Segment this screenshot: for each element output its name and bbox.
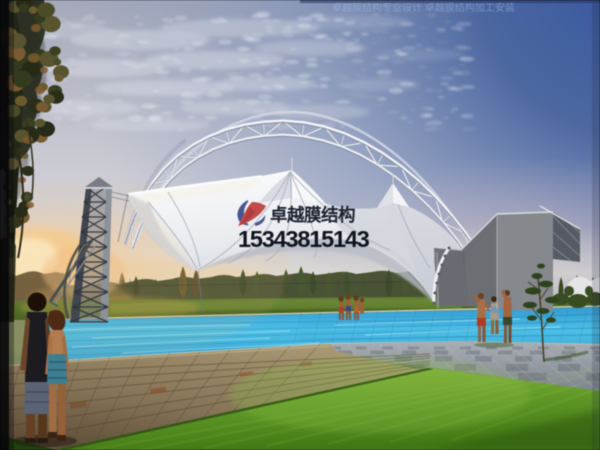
svg-text:15343815143: 15343815143 (238, 226, 370, 252)
svg-text:卓越膜结构: 卓越膜结构 (270, 205, 355, 225)
